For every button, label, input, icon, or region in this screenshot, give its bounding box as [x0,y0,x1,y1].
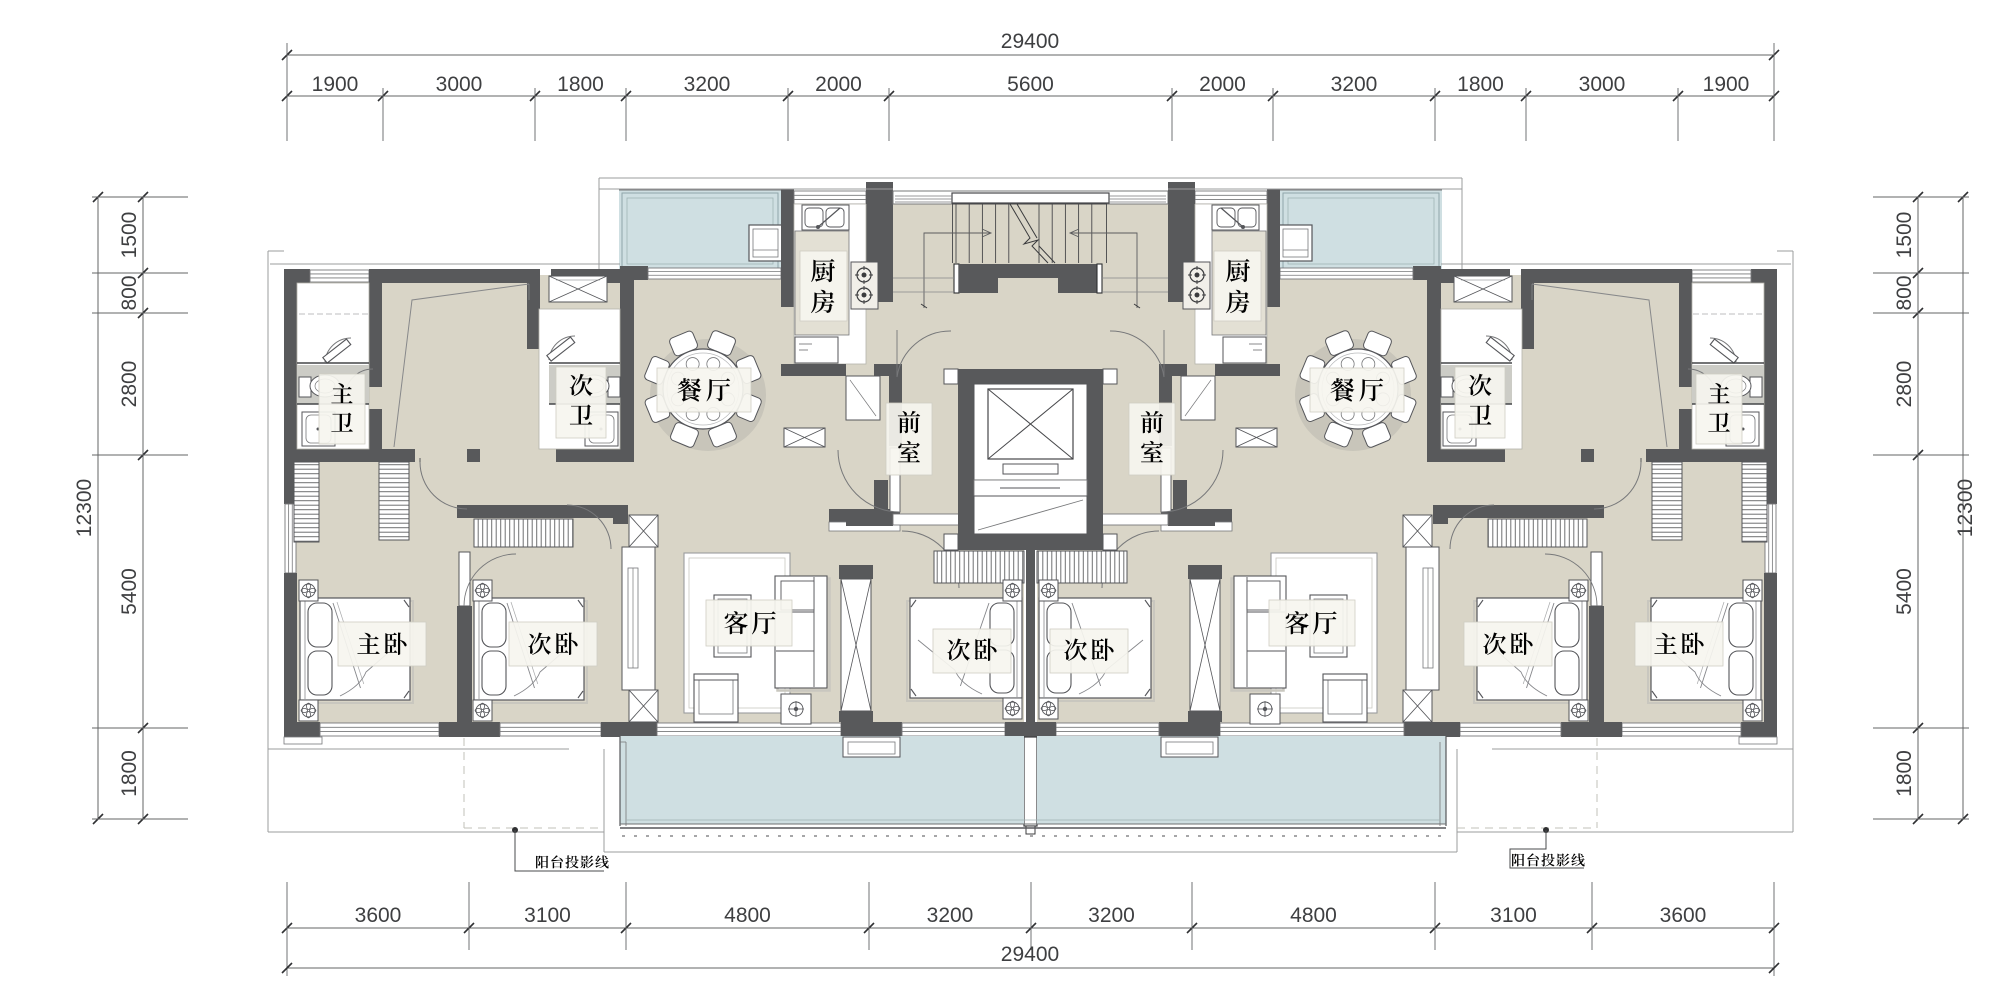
svg-text:1500: 1500 [1893,212,1916,259]
svg-text:3200: 3200 [684,73,731,96]
svg-text:3200: 3200 [927,904,974,927]
svg-text:3200: 3200 [1331,73,1378,96]
svg-text:3100: 3100 [524,904,571,927]
svg-text:1900: 1900 [1703,73,1750,96]
svg-text:5400: 5400 [1893,568,1916,615]
svg-text:3000: 3000 [1579,73,1626,96]
svg-text:1800: 1800 [557,73,604,96]
svg-text:2800: 2800 [118,361,141,408]
svg-text:3000: 3000 [436,73,483,96]
svg-text:2000: 2000 [1199,73,1246,96]
svg-text:1900: 1900 [312,73,359,96]
svg-text:800: 800 [118,275,141,310]
svg-text:4800: 4800 [724,904,771,927]
svg-text:29400: 29400 [1001,30,1059,53]
svg-text:1800: 1800 [1457,73,1504,96]
svg-text:3200: 3200 [1088,904,1135,927]
svg-text:3600: 3600 [1660,904,1707,927]
svg-text:5400: 5400 [118,568,141,615]
svg-text:12300: 12300 [73,479,96,537]
svg-text:1800: 1800 [118,750,141,797]
svg-text:4800: 4800 [1290,904,1337,927]
svg-text:3600: 3600 [355,904,402,927]
svg-text:29400: 29400 [1001,943,1059,966]
svg-text:1500: 1500 [118,212,141,259]
svg-text:1800: 1800 [1893,750,1916,797]
svg-text:3100: 3100 [1490,904,1537,927]
svg-text:2800: 2800 [1893,361,1916,408]
svg-text:5600: 5600 [1007,73,1054,96]
svg-text:2000: 2000 [815,73,862,96]
svg-text:12300: 12300 [1954,479,1977,537]
svg-text:800: 800 [1893,275,1916,310]
